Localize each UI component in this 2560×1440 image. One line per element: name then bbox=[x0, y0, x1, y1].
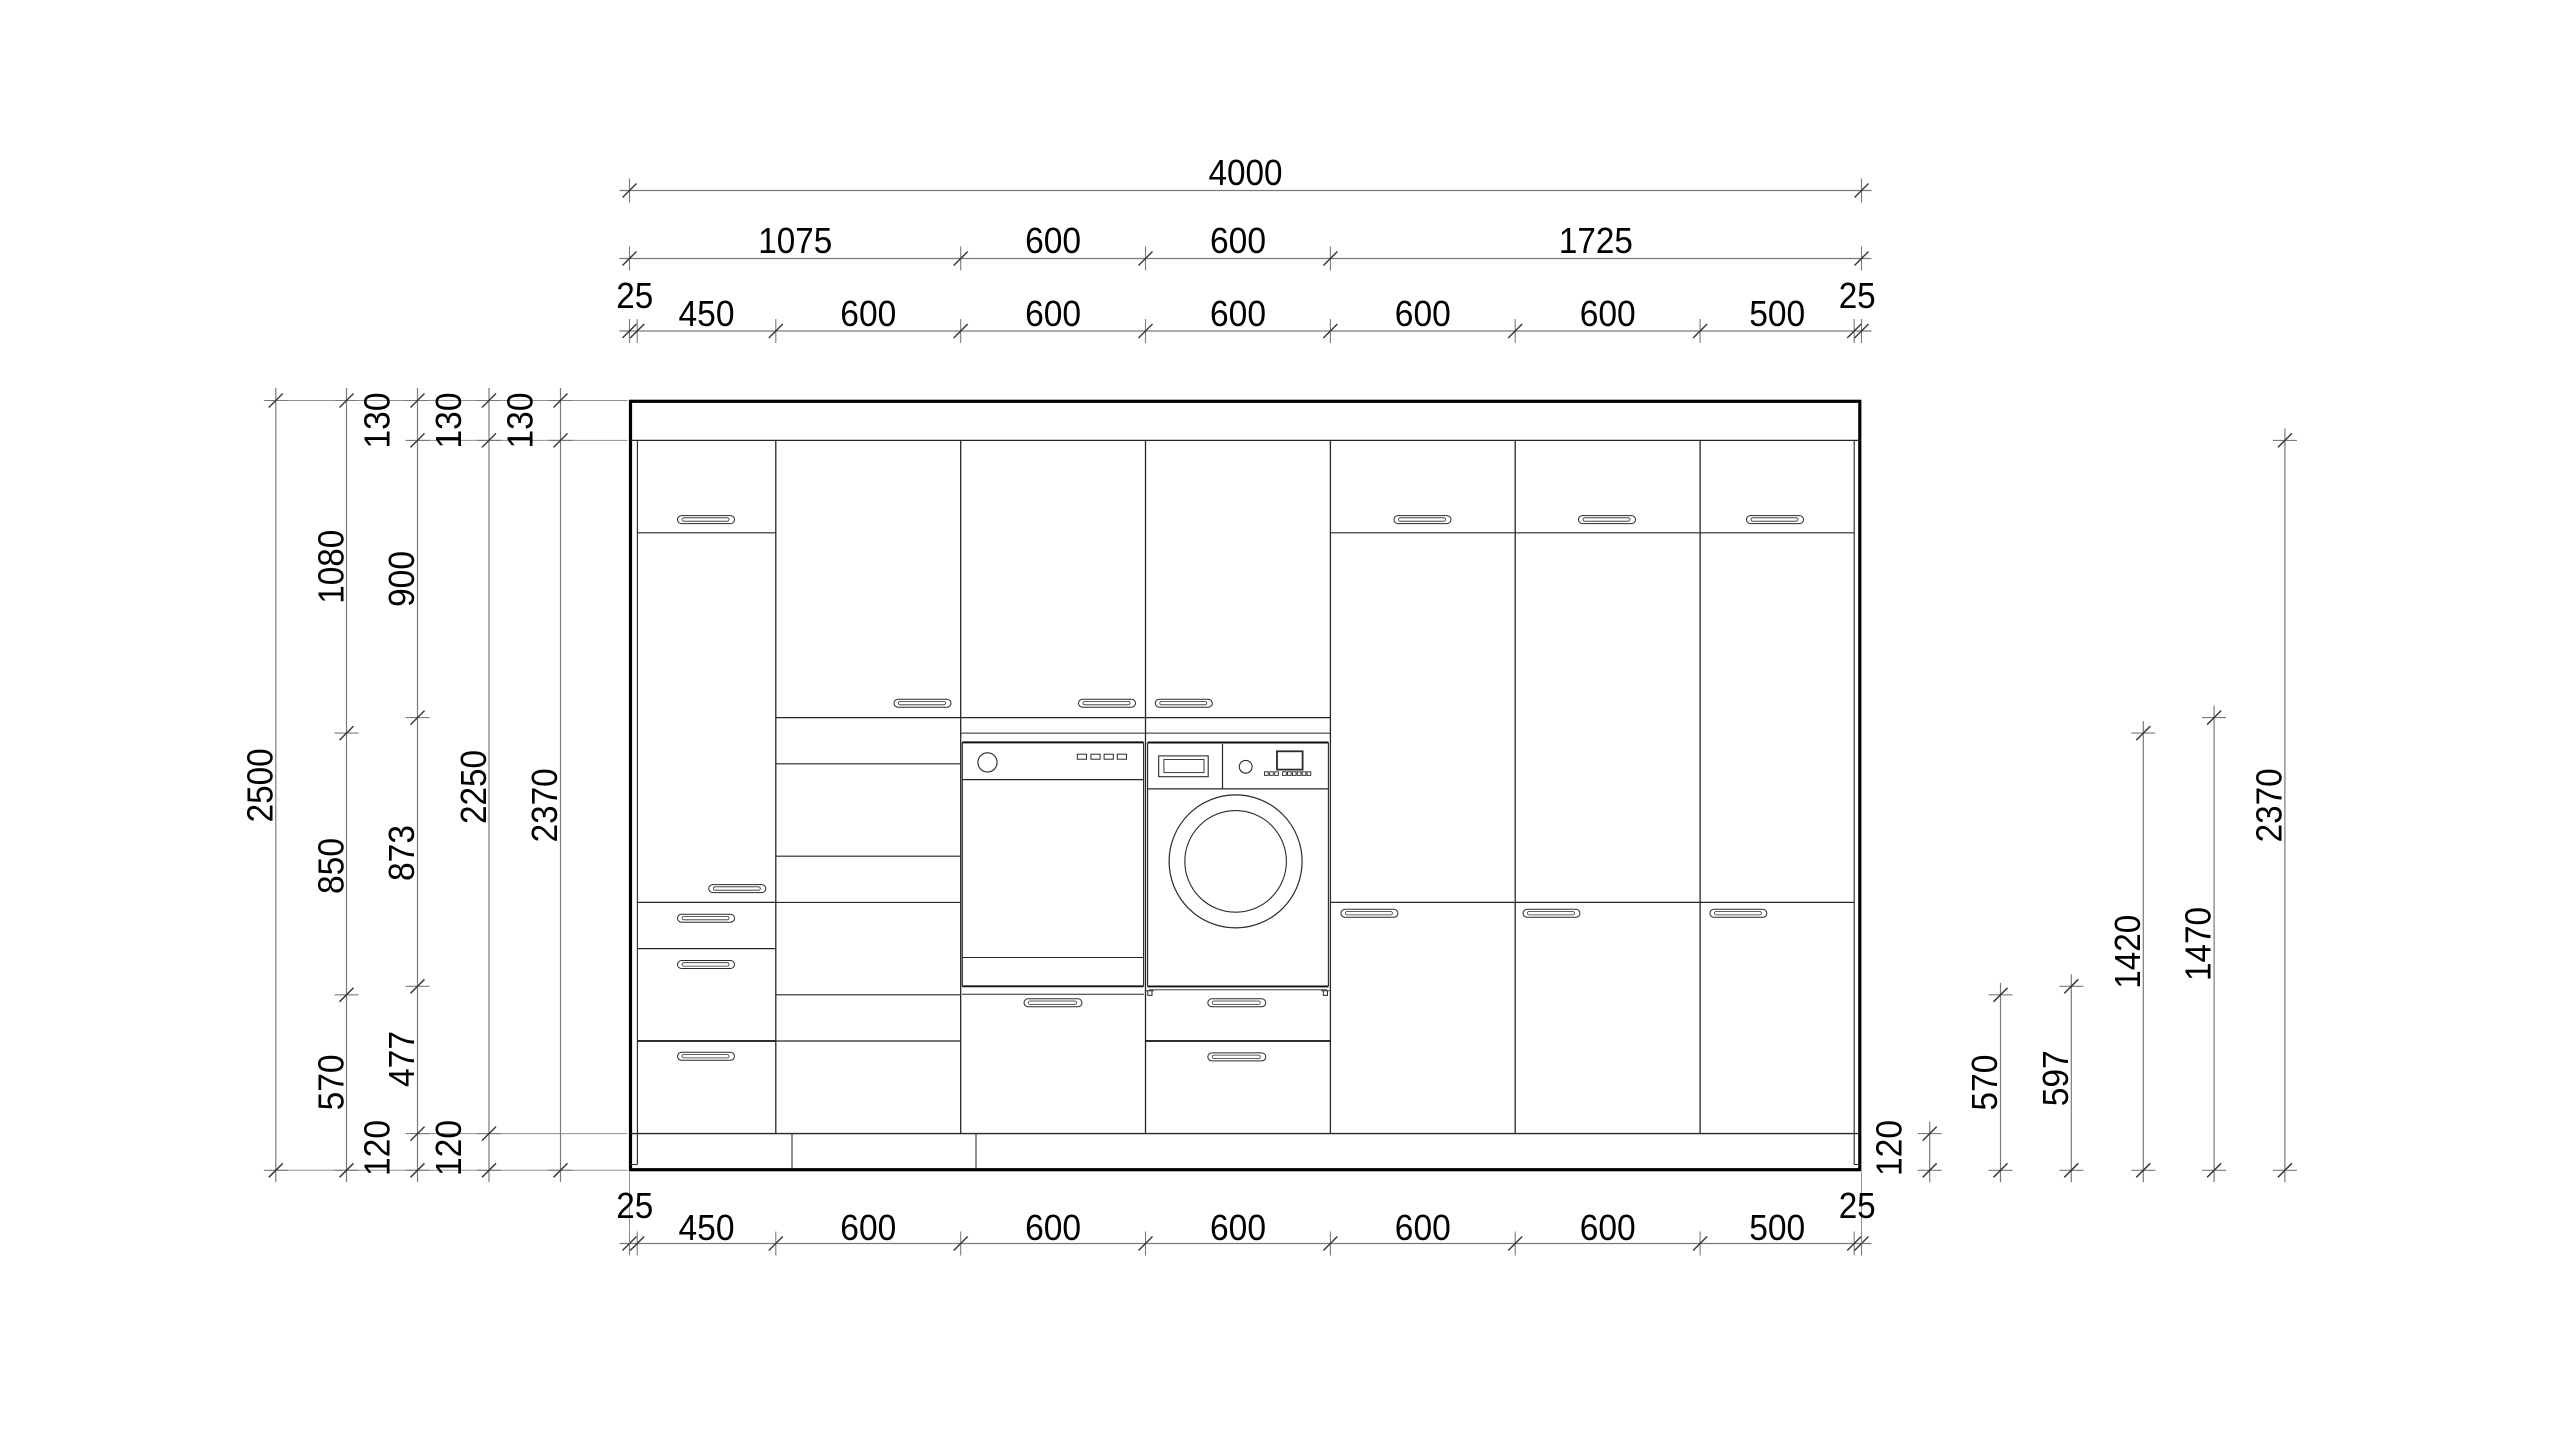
svg-text:600: 600 bbox=[1025, 293, 1081, 334]
svg-text:477: 477 bbox=[381, 1031, 422, 1087]
svg-text:2370: 2370 bbox=[2248, 768, 2289, 842]
svg-text:2500: 2500 bbox=[239, 748, 280, 822]
svg-text:600: 600 bbox=[840, 293, 896, 334]
svg-text:25: 25 bbox=[616, 1185, 653, 1226]
svg-text:570: 570 bbox=[311, 1054, 352, 1110]
svg-text:570: 570 bbox=[1964, 1055, 2005, 1111]
svg-text:500: 500 bbox=[1749, 293, 1805, 334]
svg-text:450: 450 bbox=[679, 1207, 735, 1248]
svg-text:450: 450 bbox=[679, 293, 735, 334]
svg-text:25: 25 bbox=[616, 275, 653, 316]
svg-text:25: 25 bbox=[1839, 1185, 1876, 1226]
svg-text:120: 120 bbox=[428, 1120, 469, 1176]
svg-text:1075: 1075 bbox=[758, 220, 832, 261]
svg-text:2370: 2370 bbox=[524, 768, 565, 842]
svg-text:600: 600 bbox=[1395, 293, 1451, 334]
svg-text:2250: 2250 bbox=[453, 750, 494, 824]
svg-text:120: 120 bbox=[1869, 1120, 1910, 1176]
svg-text:600: 600 bbox=[1025, 1207, 1081, 1248]
svg-text:4000: 4000 bbox=[1209, 152, 1283, 193]
svg-text:600: 600 bbox=[1025, 220, 1081, 261]
svg-text:597: 597 bbox=[2035, 1050, 2076, 1106]
svg-text:130: 130 bbox=[357, 393, 398, 449]
svg-text:130: 130 bbox=[428, 393, 469, 449]
svg-text:1420: 1420 bbox=[2107, 915, 2148, 989]
svg-text:600: 600 bbox=[1580, 1207, 1636, 1248]
svg-text:600: 600 bbox=[1210, 1207, 1266, 1248]
svg-text:850: 850 bbox=[311, 838, 352, 894]
svg-text:600: 600 bbox=[1210, 220, 1266, 261]
svg-text:600: 600 bbox=[1395, 1207, 1451, 1248]
svg-text:120: 120 bbox=[357, 1120, 398, 1176]
svg-text:25: 25 bbox=[1839, 275, 1876, 316]
svg-text:600: 600 bbox=[840, 1207, 896, 1248]
svg-text:600: 600 bbox=[1580, 293, 1636, 334]
svg-text:500: 500 bbox=[1749, 1207, 1805, 1248]
svg-text:900: 900 bbox=[381, 551, 422, 607]
svg-text:1725: 1725 bbox=[1559, 220, 1633, 261]
svg-text:1080: 1080 bbox=[311, 530, 352, 604]
svg-text:1470: 1470 bbox=[2178, 907, 2219, 981]
svg-text:600: 600 bbox=[1210, 293, 1266, 334]
svg-text:130: 130 bbox=[500, 393, 541, 449]
svg-text:873: 873 bbox=[381, 825, 422, 881]
